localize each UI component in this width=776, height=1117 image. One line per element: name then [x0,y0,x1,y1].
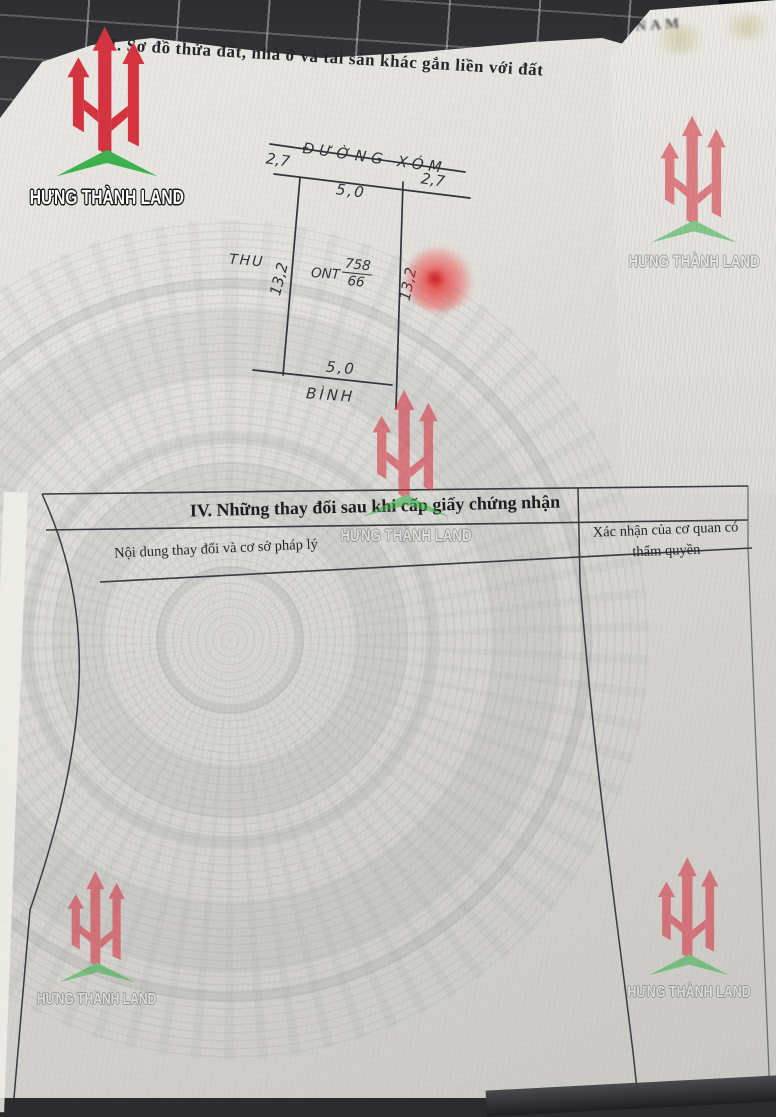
paper-stain [718,14,776,40]
paper-stain [648,24,712,54]
sheet-behind [596,0,776,494]
dong-son-drum-guilloche-pattern [0,220,650,1060]
